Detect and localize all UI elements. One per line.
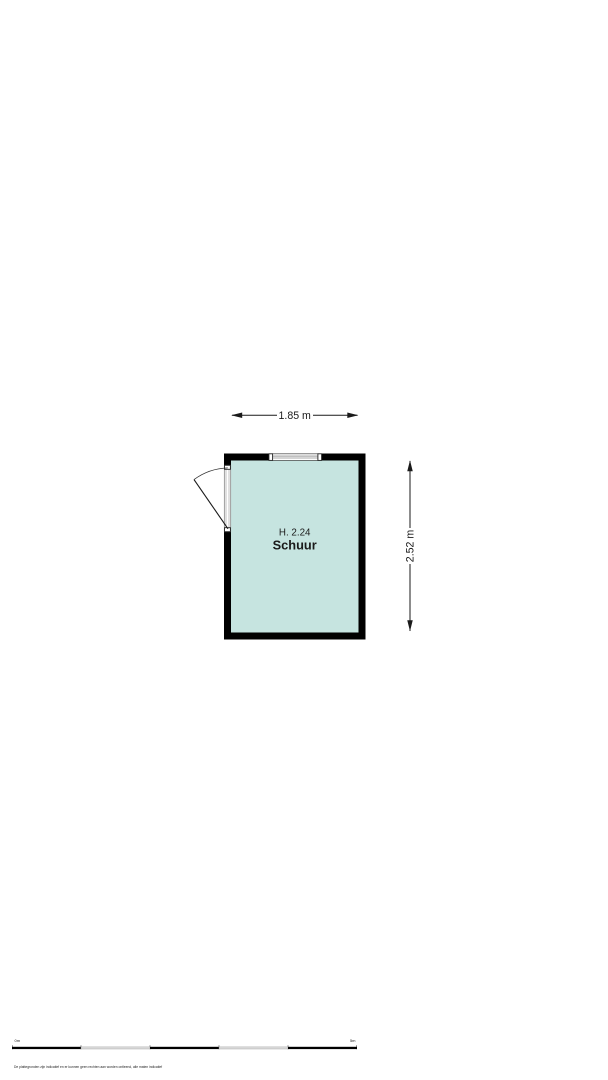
svg-text:Schuur: Schuur (273, 538, 317, 553)
svg-text:De plattegronden zijn indicati: De plattegronden zijn indicatief en er k… (14, 1065, 162, 1069)
svg-text:0m: 0m (15, 1038, 21, 1043)
svg-text:5m: 5m (350, 1038, 356, 1043)
svg-text:2.52 m: 2.52 m (405, 530, 417, 563)
svg-text:1.85 m: 1.85 m (279, 410, 312, 422)
